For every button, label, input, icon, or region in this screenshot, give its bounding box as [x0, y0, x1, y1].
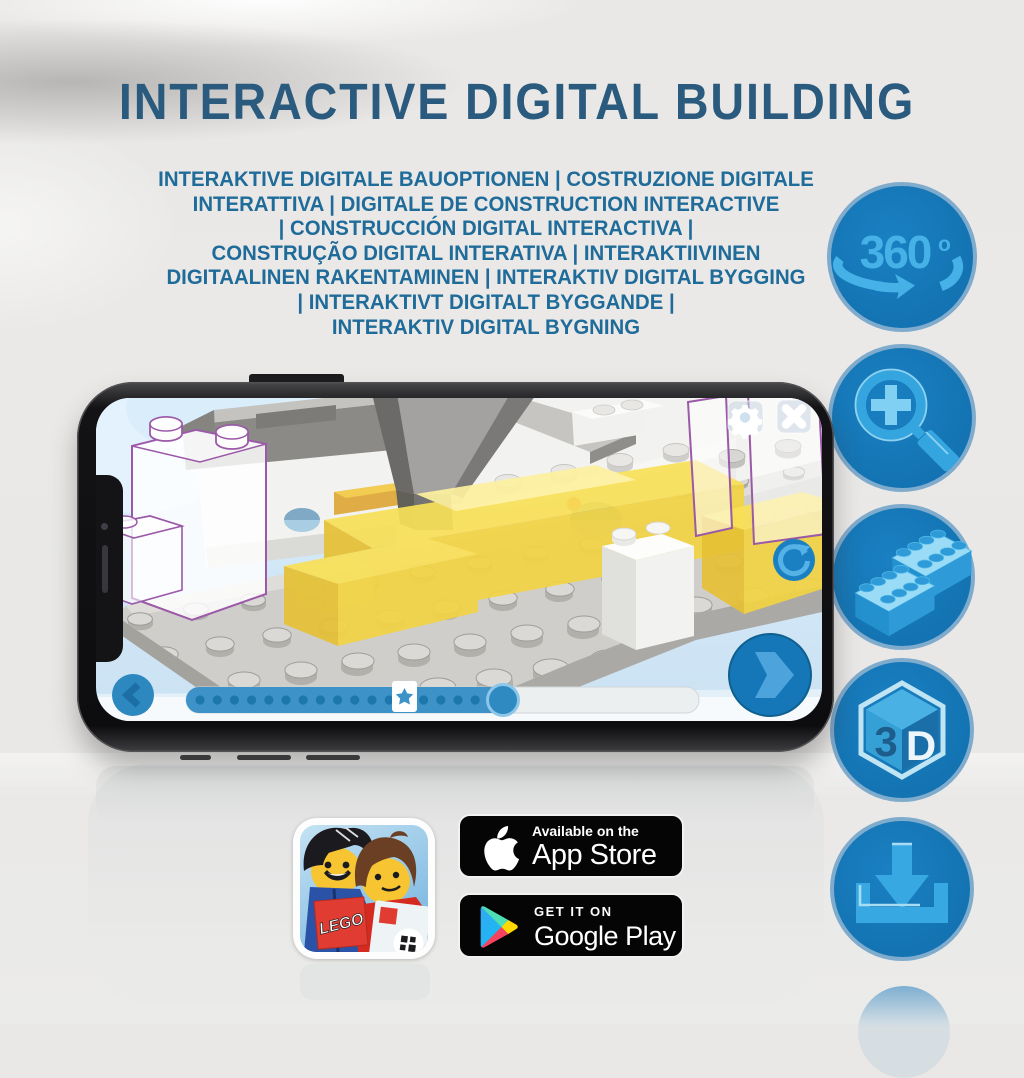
- svg-text:o: o: [938, 233, 951, 256]
- svg-text:360: 360: [860, 226, 931, 278]
- svg-text:D: D: [906, 722, 936, 769]
- svg-text:3: 3: [874, 718, 897, 765]
